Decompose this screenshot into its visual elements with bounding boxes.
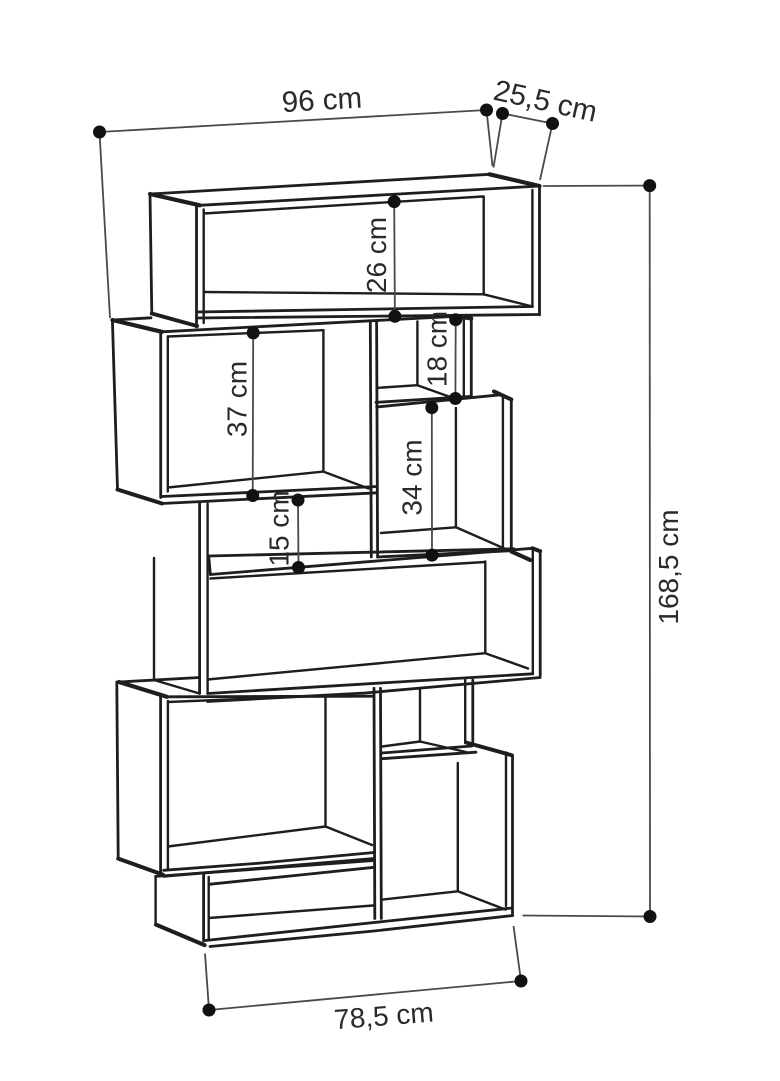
svg-text:168,5 cm: 168,5 cm	[653, 509, 684, 624]
svg-text:96 cm: 96 cm	[281, 82, 363, 120]
svg-text:34 cm: 34 cm	[396, 439, 427, 515]
svg-text:25,5 cm: 25,5 cm	[491, 74, 601, 129]
svg-text:78,5 cm: 78,5 cm	[333, 997, 435, 1036]
svg-text:18 cm: 18 cm	[421, 311, 452, 387]
svg-text:26 cm: 26 cm	[361, 217, 392, 293]
svg-text:37 cm: 37 cm	[221, 361, 252, 437]
svg-text:15 cm: 15 cm	[263, 490, 294, 566]
